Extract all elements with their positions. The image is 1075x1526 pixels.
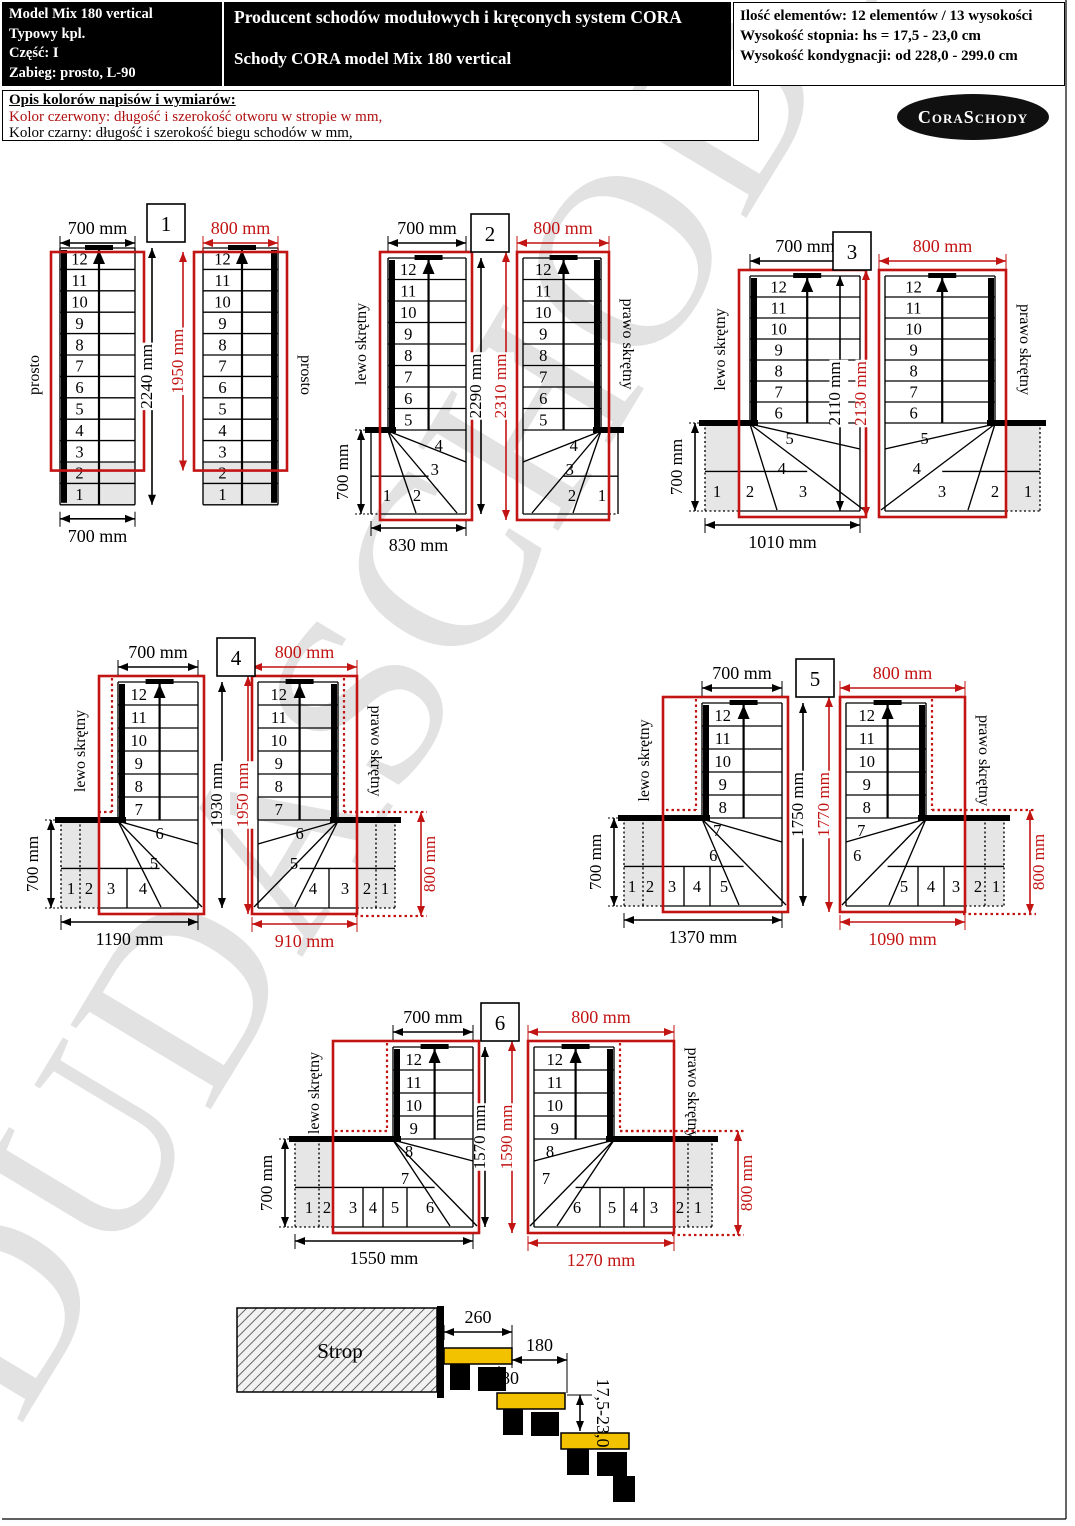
step-number: 7 (135, 800, 143, 819)
step-number: 10 (547, 1096, 564, 1115)
step-number: 11 (535, 281, 551, 300)
step-number: 5 (404, 410, 412, 429)
stringer (703, 705, 709, 816)
step-number: 5 (150, 854, 158, 873)
step-number: 4 (927, 877, 935, 896)
step-number: 5 (720, 877, 728, 896)
arrow-head (218, 682, 226, 692)
arrow-head (188, 918, 198, 926)
floor-edge-bar (987, 420, 1046, 426)
start-bar (874, 700, 902, 705)
step-number: 2 (75, 464, 83, 483)
arrow-head (252, 920, 262, 928)
step-number: 1 (75, 485, 83, 504)
step-number: 3 (341, 879, 349, 898)
dim-label: 800 mm (913, 236, 973, 256)
arrow-head (772, 916, 782, 924)
dim-label: 800 mm (873, 663, 933, 683)
dim-label: 700 mm (712, 663, 772, 683)
arrow-head (772, 684, 782, 692)
arrow-head (477, 258, 485, 268)
arrow-head (557, 1356, 567, 1364)
walk-arrow (738, 705, 750, 719)
step-number: 8 (405, 1142, 413, 1161)
arrow-head (799, 703, 807, 713)
turn-direction-label: prawo skrętny (367, 705, 384, 796)
walk-arrow (882, 705, 894, 719)
dim-label: 700 mm (586, 834, 605, 890)
step-number: 8 (75, 335, 83, 354)
step-number: 6 (426, 1198, 434, 1217)
dim-label: 700 mm (68, 526, 128, 546)
arrow-head (528, 1239, 538, 1247)
step-number: 8 (909, 361, 917, 380)
step-number: 12 (271, 685, 288, 704)
dim-label: 2130 mm (851, 361, 870, 426)
dim-label: 700 mm (128, 642, 188, 662)
step-number: 8 (774, 361, 782, 380)
dim-label: 1950 mm (168, 329, 187, 394)
diagram-4: 121110987651234700 mm1190 mm700 mmlewo s… (23, 638, 439, 951)
step-number: 2 (323, 1198, 331, 1217)
step-number: 10 (131, 731, 148, 750)
step-number: 9 (275, 754, 283, 773)
logo-text: CoraSchody (918, 107, 1028, 128)
step-number: 7 (75, 357, 83, 376)
arrow-head (203, 239, 213, 247)
step-number: 7 (275, 800, 283, 819)
arrow-head (734, 1225, 742, 1235)
arrow-head (357, 430, 365, 440)
step-number: 11 (131, 708, 147, 727)
step-number: 12 (770, 277, 787, 296)
arrow-head (347, 663, 357, 671)
diagram-number: 5 (810, 667, 821, 691)
dim-label: 1950 mm (233, 763, 252, 828)
start-bar (228, 245, 256, 250)
dim-label: 700 mm (23, 836, 42, 892)
step-number: 1 (381, 879, 389, 898)
start-bar (146, 679, 174, 684)
step-number: 6 (853, 846, 861, 865)
step-number: 3 (431, 460, 439, 479)
step-number: 9 (218, 314, 226, 333)
module-plate (597, 1452, 627, 1476)
step-number: 11 (715, 729, 731, 748)
step-number: 4 (369, 1198, 377, 1217)
outside-opening-steps (705, 423, 739, 511)
title-block-model: Model Mix 180 vertical Typowy kpl. Część… (2, 2, 222, 86)
turn-direction-label: lewo skrętny (636, 719, 653, 801)
arrow-head (118, 663, 128, 671)
turn-direction-label: prosto (297, 355, 314, 395)
dim-label: 700 mm (775, 236, 835, 256)
diagram-number: 1 (161, 212, 172, 236)
legend-title: Opis kolorów napisów i wymiarów: (9, 92, 752, 109)
arrow-head (268, 239, 278, 247)
step-number: 12 (400, 260, 417, 279)
arrow-head (508, 1041, 516, 1051)
turn-direction-label: lewo skrętny (353, 303, 370, 385)
dim-label: 910 mm (275, 931, 335, 951)
step-number: 2 (413, 486, 421, 505)
part-number: Część: I (9, 44, 215, 64)
arrow-head (512, 1356, 522, 1364)
arrow-head (47, 898, 55, 908)
step-number: 8 (218, 335, 226, 354)
step-number: 5 (900, 877, 908, 896)
step-number: 12 (905, 277, 922, 296)
arrow-head (528, 1028, 538, 1036)
step-number: 1 (598, 486, 606, 505)
step-number: 2 (85, 879, 93, 898)
step-number: 2 (646, 877, 654, 896)
dim-label: 800 mm (211, 218, 271, 238)
arrow-head (517, 239, 527, 247)
step-number: 4 (139, 879, 147, 898)
model-name: Model Mix 180 vertical (9, 5, 215, 25)
step-number: 8 (539, 346, 547, 365)
arrow-head (179, 252, 187, 262)
step-number: 4 (693, 877, 701, 896)
drawing-sheet: Model Mix 180 vertical Typowy kpl. Część… (0, 0, 1075, 1526)
step-number: 1 (1024, 482, 1032, 501)
step-number: 3 (566, 460, 574, 479)
stair-diagrams-canvas: 121110987654321700 mm700 mmprosto1211109… (0, 0, 1075, 1526)
dim-label: 1770 mm (814, 772, 833, 837)
arrow-head (610, 896, 618, 906)
dim-label: 180 (526, 1335, 553, 1355)
arrow-head (1026, 810, 1034, 820)
arrow-head (825, 697, 833, 707)
arrow-head (734, 1131, 742, 1141)
dim-label: 700 mm (397, 218, 457, 238)
step-number: 10 (400, 303, 417, 322)
step-number: 5 (75, 399, 83, 418)
step-number: 7 (713, 821, 721, 840)
arrow-head (664, 1239, 674, 1247)
kit-type: Typowy kpl. (9, 25, 215, 45)
dim-label: 800 mm (275, 642, 335, 662)
step-number: 3 (349, 1198, 357, 1217)
arrow-head (664, 1028, 674, 1036)
floor-edge-bar (699, 420, 758, 426)
arrow-head (862, 507, 870, 517)
step-number: 7 (909, 382, 917, 401)
dim-label: 1090 mm (868, 929, 937, 949)
step-number: 6 (539, 389, 547, 408)
start-bar (793, 273, 821, 278)
step-number: 10 (770, 319, 787, 338)
walk-arrow (154, 684, 166, 698)
dim-label: 830 mm (389, 535, 449, 555)
arrow-head (508, 1223, 516, 1233)
dim-label: 1930 mm (207, 763, 226, 828)
step-number: 1 (383, 486, 391, 505)
dim-label: 2290 mm (466, 354, 485, 419)
arrow-head (576, 1421, 584, 1431)
step-number: 9 (719, 775, 727, 794)
step-number: 5 (290, 854, 298, 873)
legend-black: Kolor czarny: długość i szerokość biegu … (9, 125, 752, 142)
arrow-head (825, 902, 833, 912)
storey-height: Wysokość kondygnacji: od 228,0 - 299.0 c… (740, 46, 1058, 66)
diagram-number: 3 (847, 240, 858, 264)
step-number: 7 (857, 821, 865, 840)
dim-label: 2310 mm (491, 354, 510, 419)
stringer (389, 260, 395, 428)
diagram-5: 121110987612345700 mm1370 mm700 mmlewo s… (586, 659, 1048, 949)
step-number: 4 (309, 879, 317, 898)
dim-label: 1370 mm (669, 927, 738, 947)
diagram-6: 121110987123456700 mm1550 mm700 mmlewo s… (257, 1003, 756, 1270)
walk-arrow (936, 278, 948, 292)
cora-schody-logo: CoraSchody (897, 94, 1049, 140)
step-number: 3 (952, 877, 960, 896)
arrow-head (502, 1328, 512, 1336)
step-number: 12 (406, 1050, 423, 1069)
step-number: 3 (799, 482, 807, 501)
dim-label: 1590 mm (497, 1105, 516, 1170)
arrow-head (60, 239, 70, 247)
module-post (567, 1449, 589, 1475)
arrow-head (996, 257, 1006, 265)
step-number: 8 (546, 1142, 554, 1161)
dim-label: 700 mm (68, 218, 128, 238)
stringer (61, 250, 67, 503)
module-post (450, 1364, 470, 1390)
dim-label: 1570 mm (470, 1105, 489, 1170)
dim-label: 1270 mm (567, 1250, 636, 1270)
arrow-head (836, 276, 844, 286)
title-block-producer: Producent schodów modułowych i kręconych… (224, 2, 731, 86)
step-number: 7 (218, 357, 226, 376)
dim-label: 260 (465, 1307, 492, 1327)
step-number: 8 (719, 798, 727, 817)
stringer (331, 684, 337, 818)
turn-direction-label: prawo skrętny (975, 715, 992, 806)
walk-arrow (801, 278, 813, 292)
dim-label: 1190 mm (96, 929, 164, 949)
arrow-head (179, 461, 187, 471)
step-number: 4 (570, 436, 578, 455)
diagram-number: 4 (231, 646, 242, 670)
arrow-head (444, 1328, 454, 1336)
step-number: 2 (363, 879, 371, 898)
step-number: 6 (573, 1198, 581, 1217)
arrow-head (691, 423, 699, 433)
stringer (607, 1049, 613, 1137)
step-number: 1 (713, 482, 721, 501)
step-number: 6 (75, 378, 83, 397)
dim-label: 700 mm (667, 439, 686, 495)
stringer (594, 260, 600, 428)
step-number: 2 (991, 482, 999, 501)
step-number: 4 (778, 459, 786, 478)
arrow-head (691, 501, 699, 511)
step-number: 12 (131, 685, 148, 704)
step-number: 10 (71, 292, 88, 311)
step-number: 7 (401, 1169, 409, 1188)
walk-arrow (558, 260, 570, 274)
walk-arrow (294, 684, 306, 698)
arrow-head (955, 918, 965, 926)
start-bar (421, 1044, 449, 1049)
start-bar (85, 245, 113, 250)
start-bar (415, 255, 443, 260)
step-number: 4 (913, 459, 921, 478)
arrow-head (125, 239, 135, 247)
dim-label: 1750 mm (788, 772, 807, 837)
step-number: 10 (271, 731, 288, 750)
step-number: 11 (906, 298, 922, 317)
arrow-head (576, 1395, 584, 1405)
turn-direction-label: prawo skrętny (1016, 304, 1033, 395)
step-number: 5 (785, 429, 793, 448)
step-number: 6 (155, 824, 163, 843)
walk-arrow (429, 1049, 441, 1063)
step-number: 9 (410, 1119, 418, 1138)
arrow-head (371, 524, 381, 532)
step-number: 10 (535, 303, 552, 322)
stringer (119, 684, 125, 818)
arrow-head (357, 504, 365, 514)
arrow-head (477, 504, 485, 514)
arrow-head (840, 684, 850, 692)
step-number: 3 (650, 1198, 658, 1217)
arrow-head (148, 248, 156, 258)
arrow-head (188, 663, 198, 671)
slab-end-bar (437, 1306, 444, 1398)
stringer (919, 705, 925, 816)
step-number: 1 (628, 877, 636, 896)
stringer (394, 1049, 400, 1137)
step-number: 11 (271, 708, 287, 727)
step-number: 11 (547, 1073, 563, 1092)
arrow-head (281, 1217, 289, 1227)
step-number: 4 (630, 1198, 638, 1217)
step-number: 1 (694, 1198, 702, 1217)
arrow-head (295, 1237, 305, 1245)
walk-arrow (423, 260, 435, 274)
dim-label: 800 mm (571, 1007, 631, 1027)
module-post (613, 1476, 635, 1502)
dim-label: 1550 mm (350, 1248, 419, 1268)
step-number: 6 (404, 389, 412, 408)
fan-line (388, 431, 466, 462)
step-number: 9 (551, 1119, 559, 1138)
dim-label: 800 mm (533, 218, 593, 238)
step-number: 10 (859, 752, 876, 771)
arrow-head (840, 918, 850, 926)
product-title: Schody CORA model Mix 180 vertical (234, 49, 721, 69)
step-number: 4 (218, 421, 226, 440)
step-number: 9 (863, 775, 871, 794)
step-number: 3 (218, 442, 226, 461)
step-number: 7 (774, 382, 782, 401)
arrow-head (1026, 904, 1034, 914)
dim-label: 1010 mm (748, 532, 817, 552)
step-number: 5 (539, 410, 547, 429)
arrow-head (481, 1217, 489, 1227)
step-number: 1 (305, 1198, 313, 1217)
stringer (271, 250, 277, 503)
step-number: 7 (539, 367, 547, 386)
turn-direction-label: lewo skrętny (72, 710, 89, 792)
arrow-head (702, 684, 712, 692)
arrow-head (148, 495, 156, 505)
step-number: 3 (75, 442, 83, 461)
step-number: 3 (938, 482, 946, 501)
step-number: 1 (992, 877, 1000, 896)
dim-label: 17,5-23,0 (593, 1379, 613, 1448)
step-number: 11 (771, 298, 787, 317)
start-bar (730, 700, 758, 705)
arrow-head (624, 916, 634, 924)
step-number: 12 (535, 260, 552, 279)
arrow-head (610, 818, 618, 828)
arrow-head (60, 515, 70, 523)
floor-edge-bar (330, 817, 401, 823)
turn-direction-label: prawo skrętny (619, 298, 636, 389)
step-number: 5 (608, 1198, 616, 1217)
arrow-head (347, 920, 357, 928)
step-number: 11 (72, 271, 88, 290)
start-bar (562, 1044, 590, 1049)
stringer (988, 278, 994, 421)
floor-edge-bar (289, 1136, 401, 1142)
turn-direction-label: prosto (26, 355, 43, 395)
step-number: 2 (218, 464, 226, 483)
step-number: 3 (107, 879, 115, 898)
step-number: 9 (75, 314, 83, 333)
step-number: 8 (404, 346, 412, 365)
step-number: 8 (275, 777, 283, 796)
arrow-head (456, 239, 466, 247)
step-number: 1 (67, 879, 75, 898)
turn-direction-label: prawo skrętny (684, 1047, 701, 1138)
dim-label: 700 mm (257, 1155, 276, 1211)
step-number: 10 (406, 1096, 423, 1115)
dim-label: 800 mm (1029, 834, 1048, 890)
arrow-head (481, 1047, 489, 1057)
step-number: 7 (404, 367, 412, 386)
arrow-head (862, 270, 870, 280)
dim-label: 700 mm (333, 444, 352, 500)
arrow-head (799, 896, 807, 906)
step-number: 9 (135, 754, 143, 773)
step-number: 2 (746, 482, 754, 501)
turn-type: Zabieg: prosto, L-90 (9, 64, 215, 84)
step-number: 5 (391, 1198, 399, 1217)
step-number: 10 (715, 752, 732, 771)
start-bar (550, 255, 578, 260)
step-number: 11 (400, 281, 416, 300)
arrow-head (417, 906, 425, 916)
step-number: 4 (435, 436, 443, 455)
elements-count: Ilość elementów: 12 elementów / 13 wysok… (740, 6, 1058, 26)
tread (497, 1393, 565, 1409)
step-number: 2 (974, 877, 982, 896)
turn-direction-label: lewo skrętny (306, 1052, 323, 1134)
step-number: 9 (539, 324, 547, 343)
step-number: 10 (905, 319, 922, 338)
step-number: 6 (774, 403, 782, 422)
turn-direction-label: lewo skrętny (712, 308, 729, 390)
diagram-3: 121110987654123700 mm1010 mm700 mmlewo s… (667, 232, 1046, 552)
arrow-head (955, 684, 965, 692)
arrow-head (281, 1139, 289, 1149)
